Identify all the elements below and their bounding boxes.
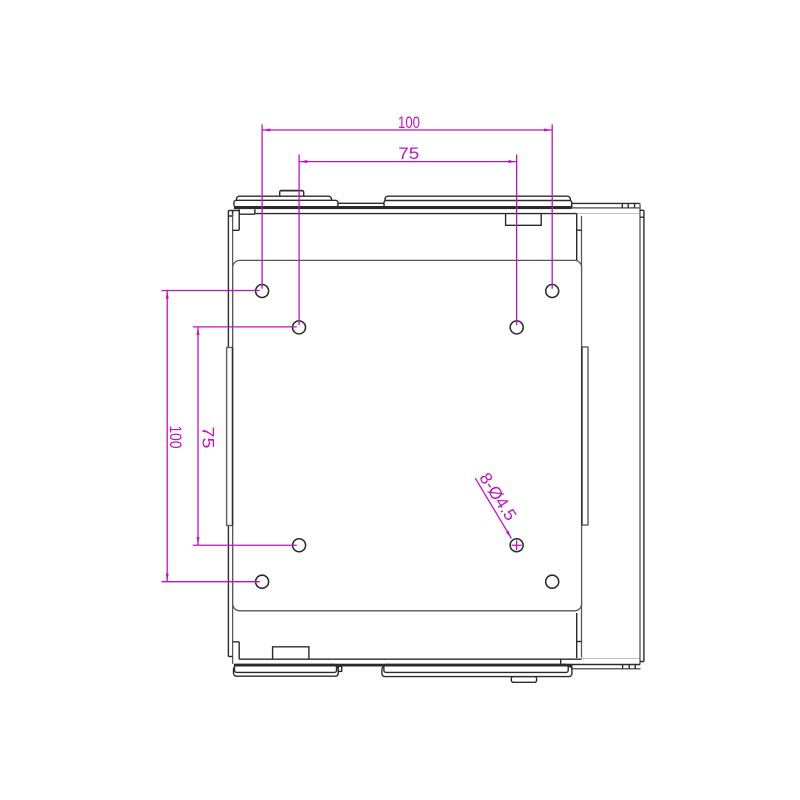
svg-text:100: 100	[398, 113, 420, 132]
svg-text:75: 75	[398, 144, 419, 163]
svg-text:100: 100	[166, 426, 185, 449]
svg-text:75: 75	[199, 427, 218, 449]
